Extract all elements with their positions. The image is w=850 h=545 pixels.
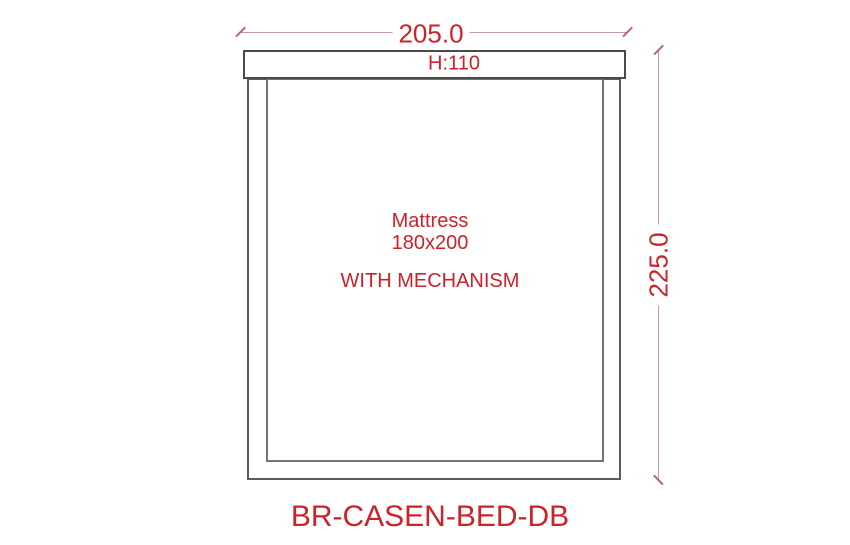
headboard-height-label: H:110 <box>428 53 480 76</box>
mechanism-label: WITH MECHANISM <box>341 270 520 292</box>
mattress-annotation: Mattress 180x200 WITH MECHANISM <box>341 210 520 292</box>
height-dimension-label: 225.0 <box>644 224 675 305</box>
technical-drawing-canvas: H:110 205.0 225.0 Mattress 180x200 WITH … <box>0 0 850 545</box>
width-dimension-label: 205.0 <box>392 19 469 50</box>
mattress-label: Mattress <box>341 210 520 232</box>
product-code-title: BR-CASEN-BED-DB <box>291 500 569 534</box>
bed-headboard-rect: H:110 <box>243 50 626 79</box>
mattress-size-label: 180x200 <box>341 232 520 254</box>
